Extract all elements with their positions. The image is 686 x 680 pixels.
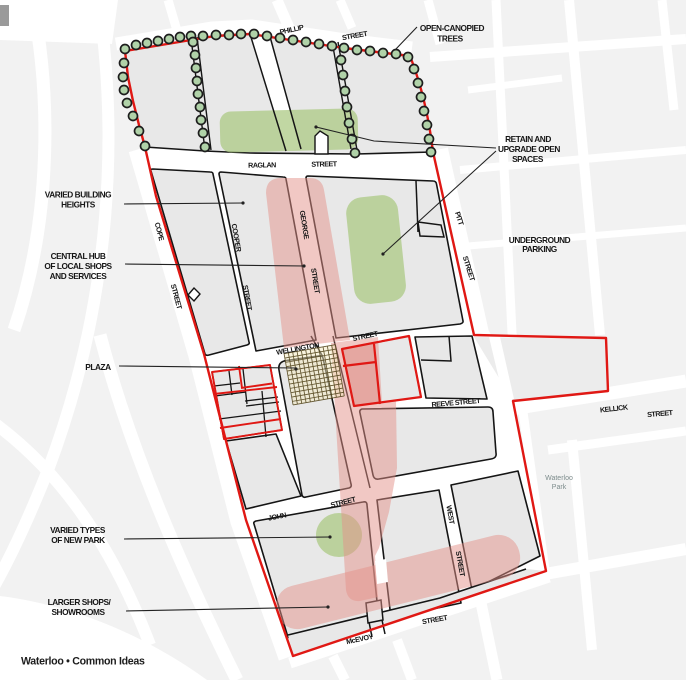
svg-text:SPACES: SPACES [512, 154, 544, 164]
svg-text:CENTRAL HUB: CENTRAL HUB [51, 251, 106, 261]
svg-text:PLAZA: PLAZA [85, 362, 111, 372]
svg-text:LARGER SHOPS/: LARGER SHOPS/ [48, 597, 112, 607]
svg-text:Waterloo • Common Ideas: Waterloo • Common Ideas [21, 656, 145, 668]
svg-text:OF LOCAL SHOPS: OF LOCAL SHOPS [44, 261, 112, 271]
svg-text:STREET: STREET [311, 159, 338, 168]
svg-text:TREES: TREES [437, 34, 463, 44]
svg-text:VARIED TYPES: VARIED TYPES [50, 525, 106, 535]
svg-text:Park: Park [552, 484, 567, 491]
svg-text:UPGRADE OPEN: UPGRADE OPEN [498, 144, 560, 154]
svg-text:OF NEW PARK: OF NEW PARK [51, 535, 105, 545]
svg-text:OPEN-CANOPIED: OPEN-CANOPIED [420, 23, 485, 33]
svg-text:SHOWROOMS: SHOWROOMS [51, 607, 105, 617]
svg-text:AND SERVICES: AND SERVICES [50, 271, 108, 281]
svg-text:Waterloo: Waterloo [545, 475, 573, 482]
svg-text:PARKING: PARKING [522, 244, 557, 254]
svg-text:RETAIN AND: RETAIN AND [505, 134, 551, 144]
svg-text:HEIGHTS: HEIGHTS [61, 200, 96, 210]
svg-text:VARIED BUILDING: VARIED BUILDING [45, 190, 111, 200]
svg-text:RAGLAN: RAGLAN [248, 160, 276, 169]
